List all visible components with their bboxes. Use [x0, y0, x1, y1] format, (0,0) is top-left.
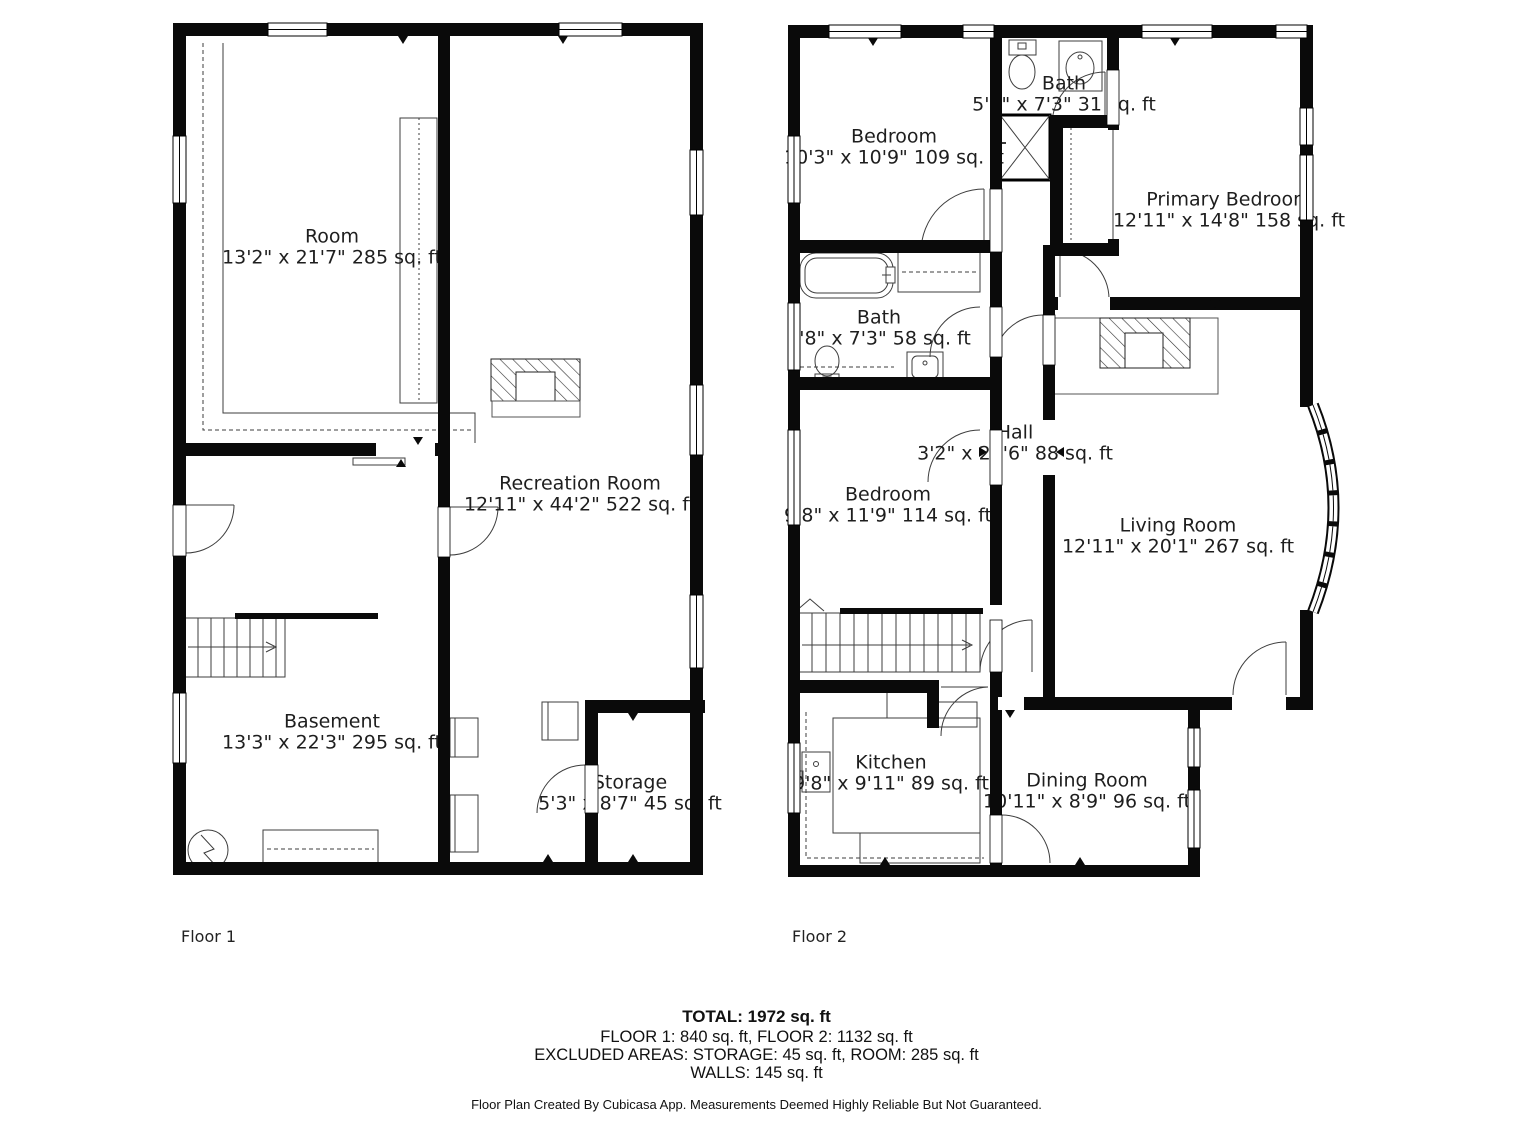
room-label-recreation: Recreation Room 12'11" x 44'2" 522 sq. f…: [464, 474, 696, 515]
room-dims: 10'3" x 10'9" 109 sq. ft: [784, 147, 1004, 168]
room-name: Room: [222, 227, 442, 248]
floor2-plan: Bedroom 10'3" x 10'9" 109 sq. ft Bath 5'…: [780, 15, 1355, 885]
area-summary: TOTAL: 1972 sq. ft FLOOR 1: 840 sq. ft, …: [0, 1006, 1513, 1082]
room-dims: 12'11" x 20'1" 267 sq. ft: [1062, 536, 1294, 557]
room-label-room: Room 13'2" x 21'7" 285 sq. ft: [222, 227, 442, 268]
room-dims: 12'11" x 14'8" 158 sq. ft: [1113, 210, 1345, 231]
room-name: Primary Bedroom: [1113, 190, 1345, 211]
floor1-room-labels: Room 13'2" x 21'7" 285 sq. ft Recreation…: [168, 15, 713, 885]
floorplan-canvas: Room 13'2" x 21'7" 285 sq. ft Recreation…: [0, 0, 1513, 1135]
room-dims: 9'8" x 7'3" 58 sq. ft: [787, 328, 971, 349]
floor-areas: FLOOR 1: 840 sq. ft, FLOOR 2: 1132 sq. f…: [0, 1028, 1513, 1046]
total-area: TOTAL: 1972 sq. ft: [0, 1006, 1513, 1028]
room-name: Kitchen: [793, 753, 989, 774]
wall-areas: WALLS: 145 sq. ft: [0, 1064, 1513, 1082]
room-name: Hall: [917, 423, 1113, 444]
room-dims: 10'11" x 8'9" 96 sq. ft: [983, 791, 1191, 812]
room-label-kitchen: Kitchen 9'8" x 9'11" 89 sq. ft: [793, 753, 989, 794]
room-label-storage: Storage 5'3" x 8'7" 45 sq. ft: [538, 773, 722, 814]
floor2-room-labels: Bedroom 10'3" x 10'9" 109 sq. ft Bath 5'…: [780, 15, 1355, 885]
room-name: Recreation Room: [464, 474, 696, 495]
room-label-basement: Basement 13'3" x 22'3" 295 sq. ft: [222, 712, 442, 753]
room-label-bath2: Bath 9'8" x 7'3" 58 sq. ft: [787, 308, 971, 349]
room-dims: 3'2" x 27'6" 88 sq. ft: [917, 443, 1113, 464]
room-dims: 12'11" x 44'2" 522 sq. ft: [464, 494, 696, 515]
room-label-living: Living Room 12'11" x 20'1" 267 sq. ft: [1062, 516, 1294, 557]
floor1-plan: Room 13'2" x 21'7" 285 sq. ft Recreation…: [168, 15, 713, 885]
room-label-primary: Primary Bedroom 12'11" x 14'8" 158 sq. f…: [1113, 190, 1345, 231]
room-name: Bedroom: [784, 485, 992, 506]
room-dims: 5'3" x 8'7" 45 sq. ft: [538, 793, 722, 814]
room-dims: 9'8" x 9'11" 89 sq. ft: [793, 773, 989, 794]
room-label-bath1: Bath 5'1" x 7'3" 31 sq. ft: [972, 74, 1156, 115]
disclaimer: Floor Plan Created By Cubicasa App. Meas…: [0, 1097, 1513, 1112]
excluded-areas: EXCLUDED AREAS: STORAGE: 45 sq. ft, ROOM…: [0, 1046, 1513, 1064]
floor1-caption: Floor 1: [181, 927, 236, 946]
room-label-dining: Dining Room 10'11" x 8'9" 96 sq. ft: [983, 771, 1191, 812]
room-name: Bedroom: [784, 127, 1004, 148]
room-name: Bath: [972, 74, 1156, 95]
room-dims: 9'8" x 11'9" 114 sq. ft: [784, 505, 992, 526]
room-name: Bath: [787, 308, 971, 329]
floor2-caption: Floor 2: [792, 927, 847, 946]
room-name: Dining Room: [983, 771, 1191, 792]
room-dims: 13'3" x 22'3" 295 sq. ft: [222, 732, 442, 753]
room-name: Living Room: [1062, 516, 1294, 537]
room-name: Basement: [222, 712, 442, 733]
room-dims: 13'2" x 21'7" 285 sq. ft: [222, 247, 442, 268]
room-dims: 5'1" x 7'3" 31 sq. ft: [972, 94, 1156, 115]
room-label-hall: Hall 3'2" x 27'6" 88 sq. ft: [917, 423, 1113, 464]
room-label-bedroom2: Bedroom 9'8" x 11'9" 114 sq. ft: [784, 485, 992, 526]
room-name: Storage: [538, 773, 722, 794]
room-label-bedroom1: Bedroom 10'3" x 10'9" 109 sq. ft: [784, 127, 1004, 168]
